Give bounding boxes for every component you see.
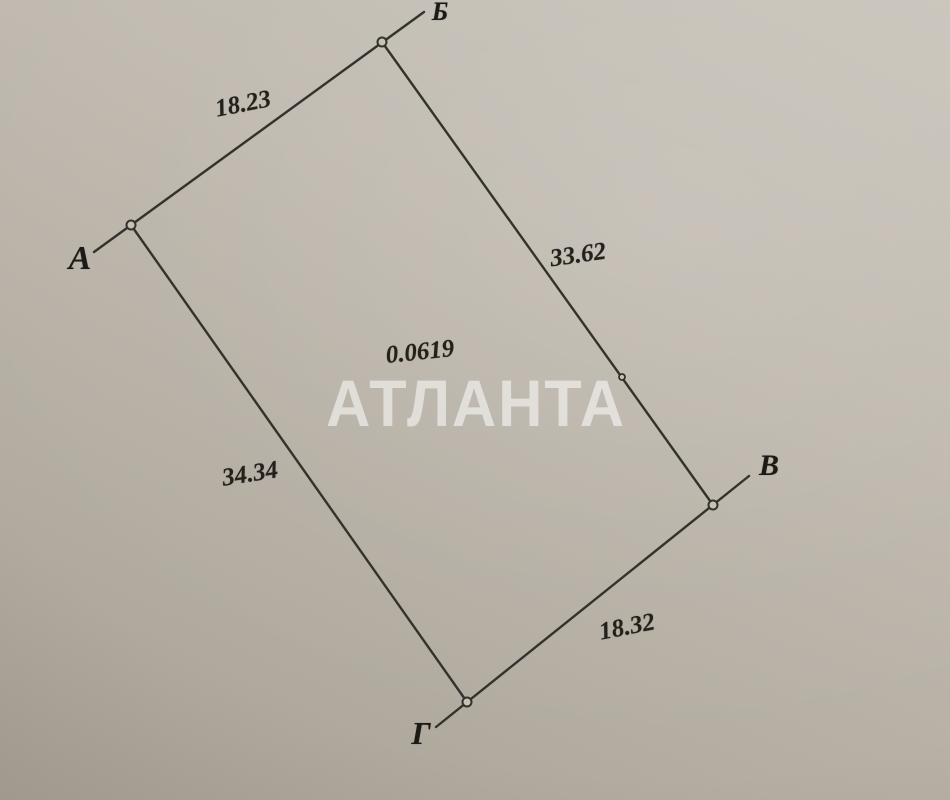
corner-label-g: Г: [411, 717, 430, 749]
vertex-marker-b: [378, 38, 387, 47]
boundary-line-ga: [131, 225, 467, 702]
vertex-marker-a: [127, 221, 136, 230]
plot-boundary-drawing: [0, 0, 950, 800]
boundary-line-bv: [382, 42, 713, 505]
vertex-marker-g: [463, 698, 472, 707]
plot-plan-photo: АТЛАНТА 18.23 33.62 18.32 34.34 0.0619 А…: [0, 0, 950, 800]
corner-label-b: Б: [432, 0, 449, 25]
boundary-line-ab: [94, 12, 424, 252]
boundary-point-marker-bv: [619, 374, 625, 380]
boundary-line-vg: [436, 476, 749, 727]
corner-label-v: В: [759, 451, 779, 481]
corner-label-a: А: [69, 242, 92, 276]
vertex-marker-v: [709, 501, 718, 510]
